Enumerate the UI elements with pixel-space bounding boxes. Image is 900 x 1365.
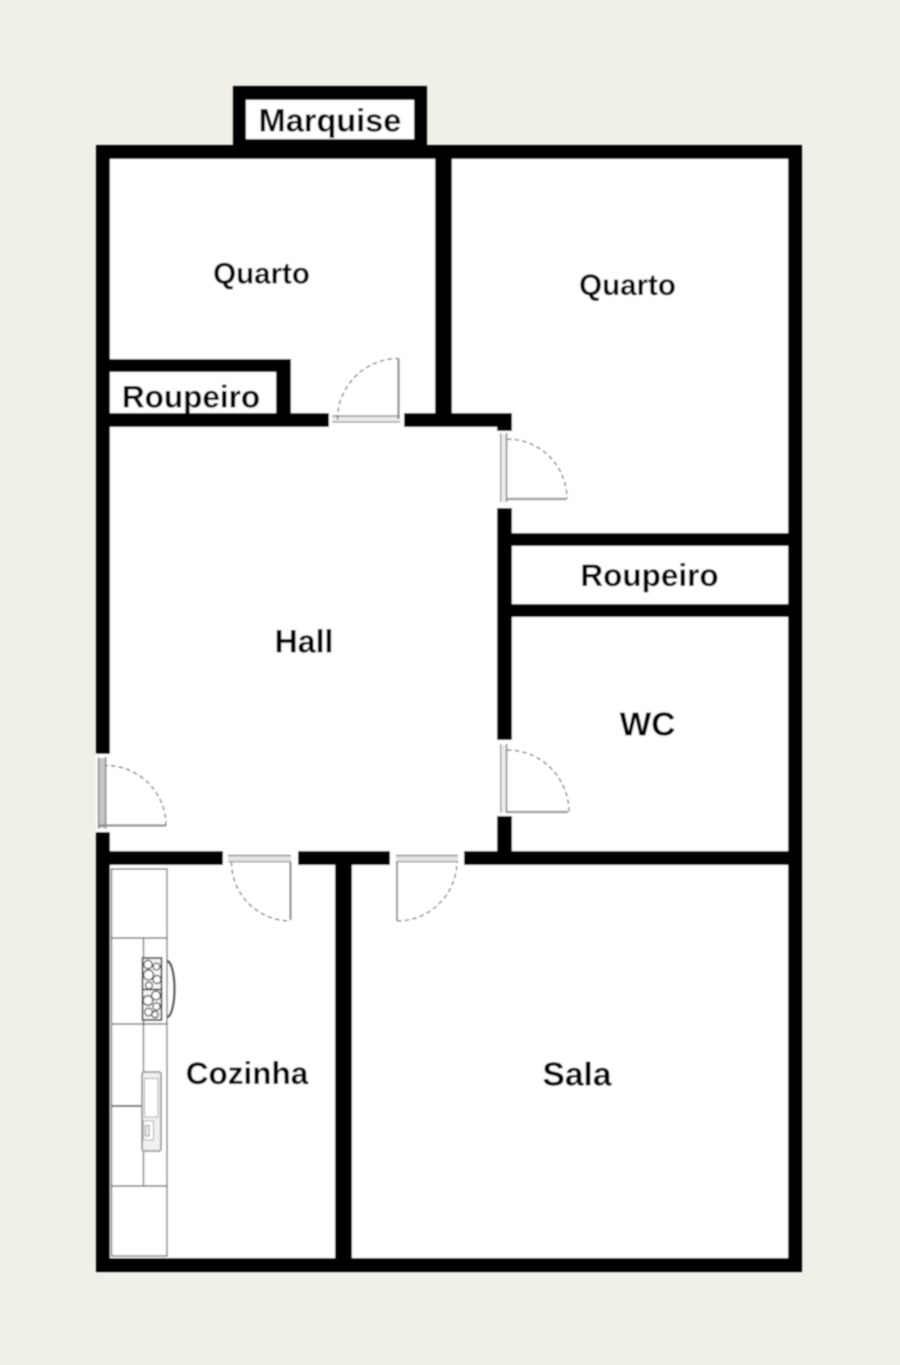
svg-text:WC: WC: [620, 707, 676, 744]
svg-text:Cozinha: Cozinha: [186, 1055, 309, 1091]
svg-text:Quarto: Quarto: [579, 269, 676, 302]
svg-text:Marquise: Marquise: [259, 103, 402, 139]
svg-text:Quarto: Quarto: [213, 258, 310, 291]
svg-text:Roupeiro: Roupeiro: [580, 557, 718, 593]
svg-text:Sala: Sala: [543, 1057, 612, 1094]
svg-text:Roupeiro: Roupeiro: [122, 379, 260, 415]
svg-text:Hall: Hall: [275, 624, 334, 660]
